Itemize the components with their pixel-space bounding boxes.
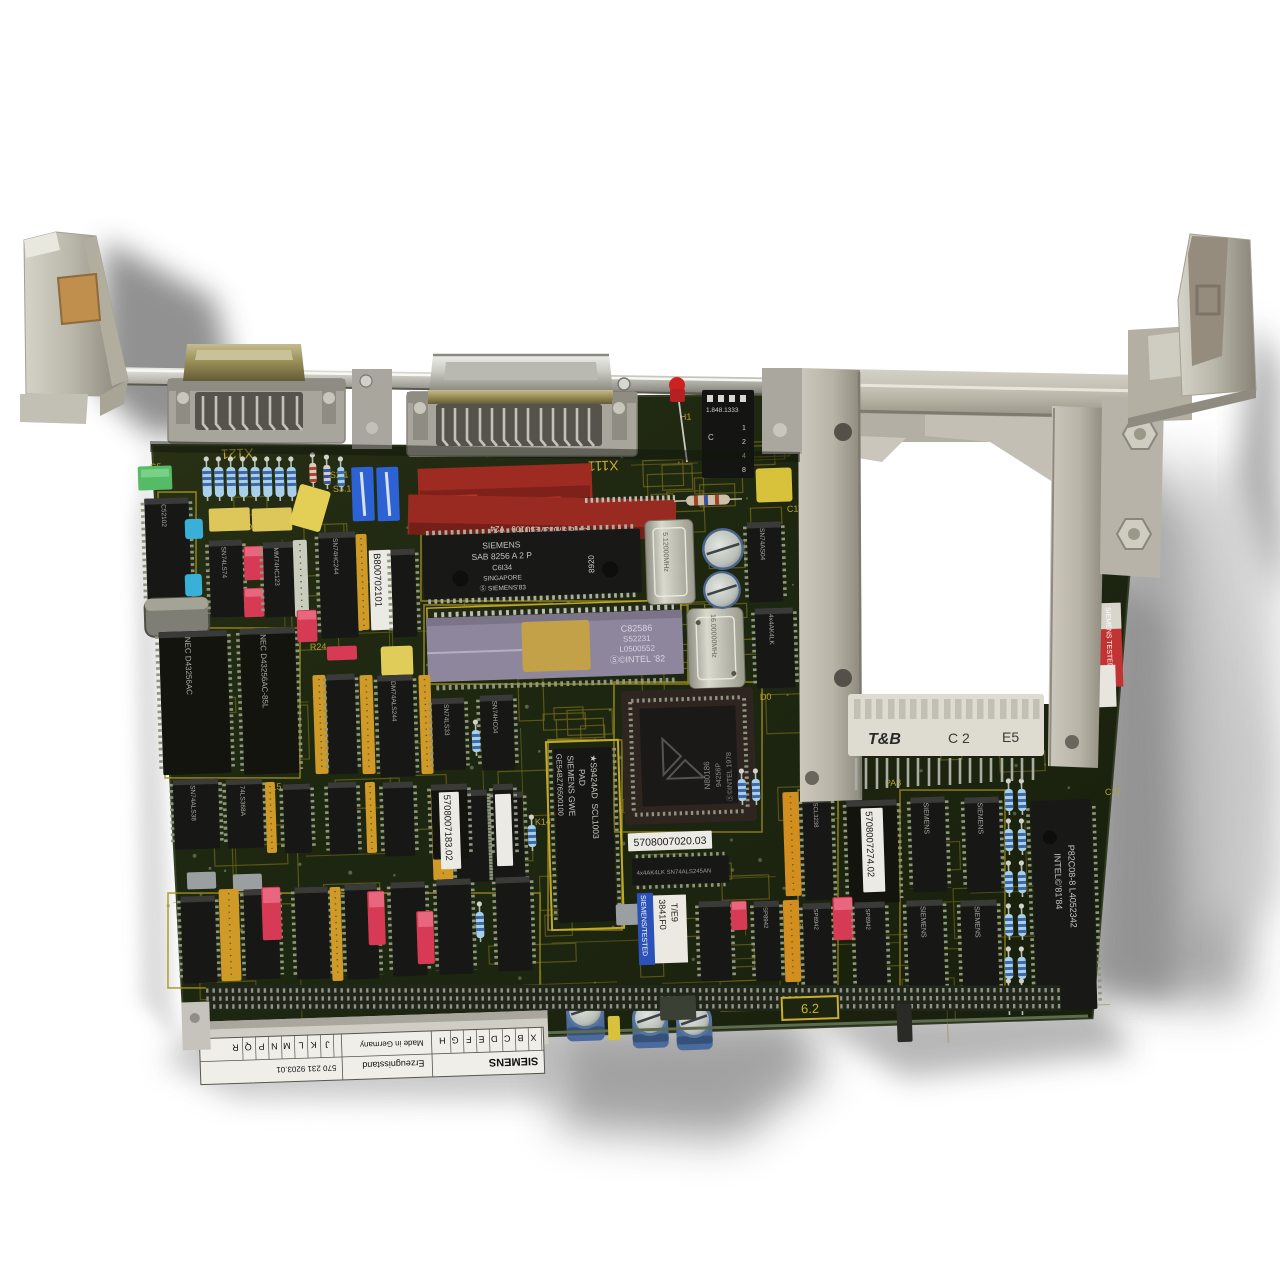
svg-text:5708007183.02: 5708007183.02 (441, 794, 454, 860)
svg-text:94256P: 94256P (715, 762, 723, 787)
svg-text:J: J (325, 1039, 330, 1049)
svg-text:SN74LS33: SN74LS33 (442, 704, 450, 736)
svg-text:X111: X111 (587, 457, 618, 474)
svg-text:4x4AK4LK: 4x4AK4LK (767, 614, 775, 646)
svg-text:SINGAPORE: SINGAPORE (483, 574, 523, 582)
svg-text:PAD: PAD (577, 769, 588, 786)
svg-text:Erzeugnisstand: Erzeugnisstand (362, 1058, 424, 1070)
svg-text:SN74HC04: SN74HC04 (490, 701, 498, 734)
svg-text:SP8942: SP8942 (864, 908, 871, 930)
svg-text:5708007020.03: 5708007020.03 (633, 835, 707, 849)
svg-text:6.2: 6.2 (801, 1001, 820, 1017)
svg-text:1.848.1333: 1.848.1333 (706, 407, 739, 414)
svg-text:SIEMENS: SIEMENS (922, 802, 930, 834)
svg-text:C82586: C82586 (621, 623, 653, 634)
svg-text:C 2: C 2 (948, 730, 970, 746)
svg-text:INTEL©’81’84: INTEL©’81’84 (1052, 853, 1064, 909)
svg-text:SCL3238: SCL3238 (811, 802, 818, 828)
svg-text:SP8942: SP8942 (761, 907, 768, 929)
svg-text:SIEMENS: SIEMENS (489, 1054, 539, 1068)
svg-text:R: R (232, 1042, 239, 1052)
svg-text:C6I34: C6I34 (492, 563, 512, 573)
svg-text:SN74AS04: SN74AS04 (758, 528, 766, 561)
svg-text:8920: 8920 (587, 554, 597, 573)
svg-text:T&B: T&B (868, 731, 901, 748)
svg-text:P: P (258, 1042, 264, 1052)
svg-text:C: C (708, 433, 714, 442)
svg-text:C52102: C52102 (159, 504, 167, 527)
svg-text:2: 2 (742, 439, 746, 446)
svg-text:5.12000MHz: 5.12000MHz (661, 532, 669, 572)
svg-text:16.00000MHz: 16.00000MHz (709, 614, 717, 658)
svg-text:S52231: S52231 (623, 634, 651, 644)
svg-text:F: F (465, 1035, 471, 1045)
svg-text:SIEMENS: SIEMENS (973, 906, 981, 938)
svg-text:L0500552: L0500552 (619, 644, 655, 654)
svg-text:SIEMENS: SIEMENS (919, 906, 927, 938)
svg-text:3841F0: 3841F0 (657, 899, 668, 930)
svg-text:8: 8 (742, 467, 746, 474)
svg-text:B: B (517, 1033, 523, 1043)
svg-text:D: D (490, 1034, 497, 1044)
svg-text:H: H (439, 1036, 446, 1046)
svg-text:X: X (530, 1032, 536, 1042)
svg-text:L: L (298, 1040, 303, 1050)
svg-text:C1: C1 (787, 504, 799, 514)
svg-text:N: N (271, 1041, 278, 1051)
svg-text:SIEMENS: SIEMENS (482, 539, 521, 550)
svg-text:N80186: N80186 (702, 761, 712, 790)
svg-text:74LS368A: 74LS368A (238, 786, 246, 817)
svg-text:E: E (478, 1034, 484, 1044)
svg-text:5708007274.02: 5708007274.02 (863, 811, 876, 877)
svg-text:G: G (451, 1035, 458, 1045)
svg-text:Ⓢ©INTEL ’82: Ⓢ©INTEL ’82 (610, 653, 666, 665)
svg-text:C: C (503, 1033, 510, 1043)
svg-text:C17: C17 (1105, 786, 1122, 797)
svg-text:D0: D0 (760, 692, 772, 702)
svg-text:SIEMENS: SIEMENS (976, 802, 984, 834)
svg-text:T/E9: T/E9 (669, 903, 680, 922)
svg-text:Q: Q (244, 1042, 251, 1052)
svg-text:E5: E5 (1002, 729, 1019, 745)
svg-text:SN74HC244: SN74HC244 (331, 538, 339, 575)
svg-text:M: M (283, 1041, 291, 1051)
svg-text:SAB 8256 A 2 P: SAB 8256 A 2 P (471, 550, 532, 562)
svg-text:K: K (310, 1040, 316, 1050)
svg-text:SN74ALS38: SN74ALS38 (189, 785, 197, 821)
svg-text:SN74LS74: SN74LS74 (219, 547, 227, 579)
svg-text:Ⓢ©INTEL 1978: Ⓢ©INTEL 1978 (725, 752, 735, 802)
svg-text:SP8942: SP8942 (812, 908, 819, 930)
svg-text:1: 1 (742, 425, 746, 432)
svg-text:SIEMENS GWE: SIEMENS GWE (565, 755, 577, 817)
svg-text:Ⓢ SIEMENS’83: Ⓢ SIEMENS’83 (480, 583, 527, 593)
svg-text:DM74ALS244: DM74ALS244 (389, 681, 397, 722)
svg-text:R24: R24 (310, 641, 327, 652)
svg-text:MM74HC123: MM74HC123 (272, 547, 280, 586)
svg-text:B800702101: B800702101 (371, 553, 384, 607)
